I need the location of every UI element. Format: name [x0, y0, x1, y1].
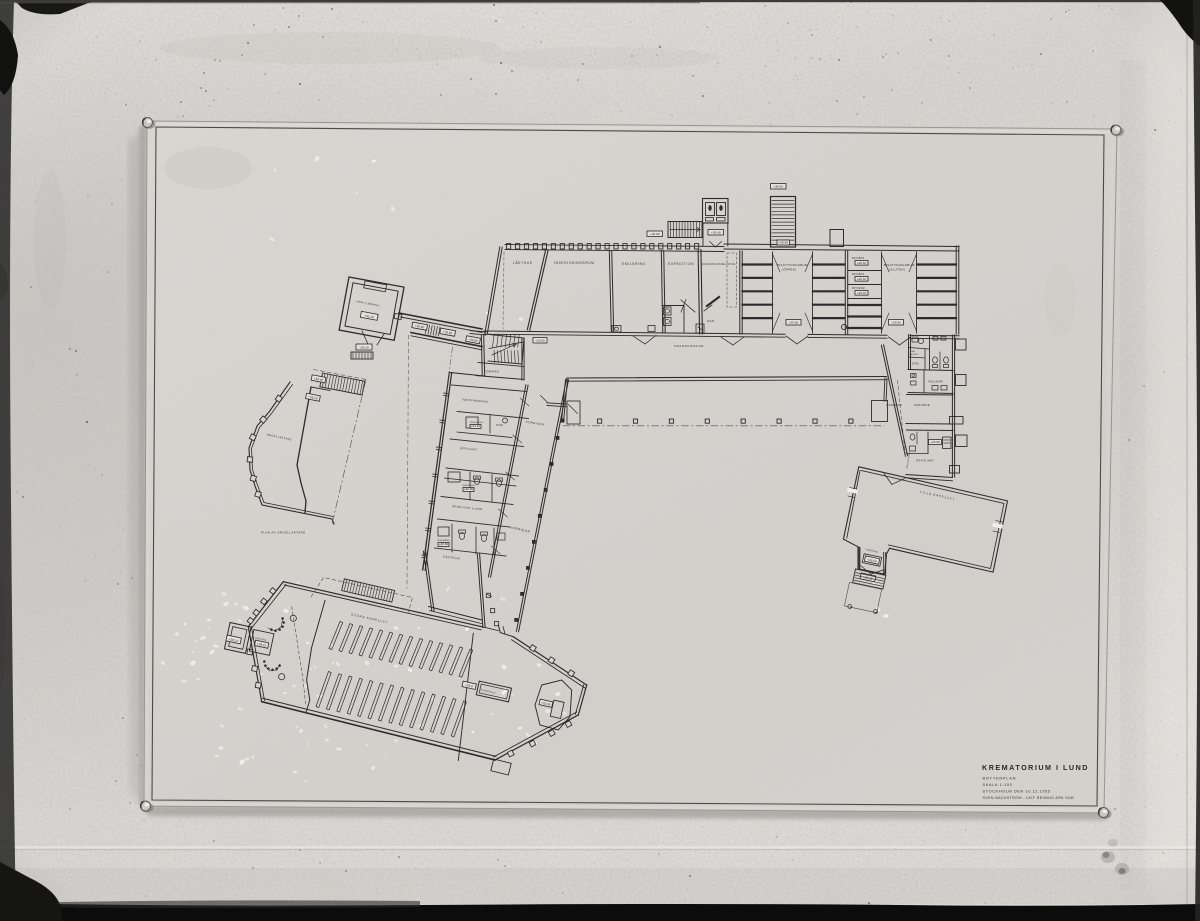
svg-text:FÖRRÅD: FÖRRÅD — [484, 369, 499, 374]
svg-text:SÖKANDE: SÖKANDE — [914, 403, 930, 407]
svg-text:OFFICIANT: OFFICIANT — [916, 459, 935, 463]
svg-text:+29.60: +29.60 — [789, 321, 799, 325]
svg-text:PLAN AV ORGELLÄKTARE: PLAN AV ORGELLÄKTARE — [261, 531, 306, 535]
svg-text:KRANSGÅNGAR: KRANSGÅNGAR — [674, 343, 704, 348]
svg-text:TOAL HERR: TOAL HERR — [928, 381, 943, 384]
svg-text:+29.60: +29.60 — [778, 241, 788, 245]
svg-text:LÅKTHUS: LÅKTHUS — [513, 260, 533, 265]
svg-text:STÄD: STÄD — [496, 424, 503, 427]
svg-text:EXPEDITION: EXPEDITION — [668, 262, 694, 266]
svg-text:KORRIDOR: KORRIDOR — [887, 404, 902, 407]
svg-text:+36.60: +36.60 — [773, 185, 783, 189]
svg-text:+26.10: +26.10 — [857, 291, 867, 295]
svg-text:BISÄTTNINGSRUM: BISÄTTNINGSRUM — [777, 263, 808, 267]
svg-text:KREMATORIUM I LUND: KREMATORIUM I LUND — [982, 763, 1089, 772]
svg-text:+32.60: +32.60 — [650, 232, 660, 236]
svg-text:FRYSBOX: FRYSBOX — [852, 258, 865, 260]
svg-text:BOTTENPLAN: BOTTENPLAN — [983, 776, 1017, 781]
svg-text:SVEN BACKSTRÖM - LEIF REINIUS: SVEN BACKSTRÖM - LEIF REINIUS ARK SAR. — [983, 796, 1076, 800]
svg-text:+29.60: +29.60 — [711, 231, 721, 235]
svg-text:(ÖPPEN): (ÖPPEN) — [782, 268, 797, 272]
svg-text:+26.10: +26.10 — [857, 261, 867, 265]
svg-text:TOAL: TOAL — [910, 350, 917, 353]
svg-text:INSKRIVNINGSRUM: INSKRIVNINGSRUM — [554, 261, 595, 265]
svg-text:KRANSAVDELNING: KRANSAVDELNING — [702, 262, 736, 266]
svg-text:VESTIB: VESTIB — [910, 354, 919, 356]
svg-text:SKALA 1:100: SKALA 1:100 — [983, 782, 1013, 787]
svg-text:EMILERING: EMILERING — [622, 262, 646, 266]
svg-text:+26.60: +26.60 — [930, 440, 940, 444]
svg-text:UGN: UGN — [707, 319, 714, 323]
svg-text:+29.60: +29.60 — [464, 487, 474, 491]
svg-text:STÄD: STÄD — [912, 363, 919, 366]
svg-text:BISÄTTNINGSRUM: BISÄTTNINGSRUM — [884, 263, 915, 267]
svg-text:+26.10: +26.10 — [857, 277, 867, 281]
svg-text:STOCKHOLM DEN 10.12.1955: STOCKHOLM DEN 10.12.1955 — [983, 789, 1051, 794]
svg-text:+29.60: +29.60 — [535, 339, 545, 343]
svg-text:(SLUTEN): (SLUTEN) — [889, 268, 905, 272]
svg-text:+28.10: +28.10 — [359, 346, 369, 350]
svg-text:FRYSBOX: FRYSBOX — [852, 274, 865, 276]
svg-text:+29.60: +29.60 — [891, 321, 901, 325]
svg-text:+28.60: +28.60 — [439, 542, 449, 546]
svg-text:+31.10: +31.10 — [471, 424, 481, 428]
svg-text:FRYSRUM: FRYSRUM — [852, 288, 865, 290]
